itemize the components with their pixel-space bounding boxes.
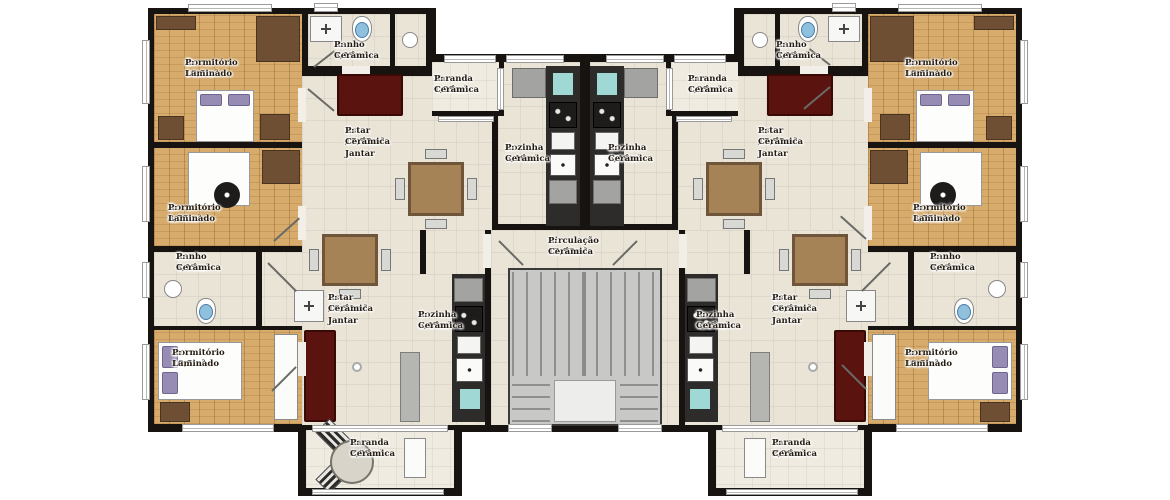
window (1020, 40, 1028, 104)
chair (693, 178, 703, 200)
balcony-bench (744, 438, 766, 478)
pillow (920, 94, 942, 106)
top-center-notch (436, 0, 734, 54)
wardrobe (262, 150, 300, 184)
chair (765, 178, 775, 200)
stair-landing (554, 380, 616, 422)
oven (687, 358, 714, 382)
chair (467, 178, 477, 200)
wardrobe (156, 16, 196, 30)
stair-treads (620, 380, 658, 422)
window (508, 424, 552, 432)
wall-stub (390, 14, 395, 66)
nightstand (260, 114, 290, 140)
wardrobe (870, 16, 914, 62)
nightstand (158, 116, 184, 140)
balcony-railing (674, 55, 726, 63)
light-fixture (808, 362, 818, 372)
dining-table (408, 162, 464, 216)
kitchen-sink (550, 70, 576, 98)
stair-stringer (583, 272, 586, 376)
stair-treads (512, 380, 550, 422)
window (1020, 344, 1028, 400)
wardrobe (974, 16, 1014, 30)
wall-stub (744, 230, 750, 274)
wall-stub (420, 230, 426, 274)
dining-table (706, 162, 762, 216)
dresser (160, 402, 190, 422)
counter-sink (689, 336, 713, 354)
nightstand (986, 116, 1012, 140)
wall-stub (908, 252, 914, 326)
window (606, 55, 664, 63)
pillow (992, 346, 1008, 368)
pillow (992, 372, 1008, 394)
shower-tray (294, 290, 324, 322)
window (898, 4, 982, 12)
door-opening (483, 234, 491, 268)
window (142, 40, 150, 104)
chair (395, 178, 405, 200)
kitchen-sink (594, 70, 620, 98)
toilet-seat (957, 304, 971, 320)
toilet-seat (801, 22, 815, 38)
door-opening (298, 342, 306, 376)
window (188, 4, 272, 12)
balcony-railing (666, 68, 673, 110)
sofa (337, 74, 403, 116)
toilet-seat (355, 22, 369, 38)
fridge (454, 278, 483, 302)
oven (456, 358, 483, 382)
window (832, 3, 856, 12)
sofa (834, 330, 866, 422)
sofa (767, 74, 833, 116)
stove (549, 102, 577, 128)
pillow (162, 372, 178, 394)
window (142, 166, 150, 222)
window (1020, 262, 1028, 298)
light-fixture (352, 362, 362, 372)
dining-table (322, 234, 378, 286)
stove (593, 102, 621, 128)
window (142, 344, 150, 400)
cabinet (549, 180, 577, 204)
chair (381, 249, 391, 271)
door-opening (864, 342, 872, 376)
fridge (687, 278, 716, 302)
door-opening (298, 206, 306, 240)
pillow (200, 94, 222, 106)
shower-tray (846, 290, 876, 322)
kitchen-sink (687, 386, 713, 412)
closet (872, 334, 896, 420)
balcony-bench (404, 438, 426, 478)
counter-sink (457, 336, 481, 354)
chair (851, 249, 861, 271)
chair (309, 249, 319, 271)
chair (425, 149, 447, 159)
dining-table (792, 234, 848, 286)
tv-rack (400, 352, 420, 422)
window (314, 3, 338, 12)
chair (723, 219, 745, 229)
door-opening (864, 206, 872, 240)
balcony-door-opening (438, 116, 494, 122)
cabinet (593, 180, 621, 204)
door-opening (342, 66, 370, 74)
sofa (304, 330, 336, 422)
counter-sink (551, 132, 575, 150)
shower-tray (828, 16, 860, 42)
pillow (948, 94, 970, 106)
shower-tray (310, 16, 342, 42)
fridge (624, 68, 658, 98)
balcony-railing (497, 68, 504, 110)
washbasin (164, 280, 182, 298)
door-opening (298, 88, 306, 122)
window (142, 262, 150, 298)
chair (779, 249, 789, 271)
balcony-door-opening (722, 425, 858, 432)
fridge (512, 68, 546, 98)
toilet-seat (199, 304, 213, 320)
chair (723, 149, 745, 159)
door-opening (800, 66, 828, 74)
door-opening (864, 88, 872, 122)
wardrobe (256, 16, 300, 62)
window (896, 424, 988, 432)
window (1020, 166, 1028, 222)
tv-rack (750, 352, 770, 422)
balcony-railing (312, 489, 444, 495)
door-opening (679, 234, 687, 268)
washbasin (402, 32, 418, 48)
balcony-railing (726, 489, 858, 495)
wardrobe (870, 150, 908, 184)
window (618, 424, 662, 432)
dresser (980, 402, 1010, 422)
washbasin (988, 280, 1006, 298)
pillow (228, 94, 250, 106)
window (182, 424, 274, 432)
washbasin (752, 32, 768, 48)
wall-stub (256, 252, 262, 326)
chair (425, 219, 447, 229)
nightstand (880, 114, 910, 140)
balcony-railing (444, 55, 496, 63)
kitchen-sink (457, 386, 483, 412)
balcony-door-opening (312, 425, 448, 432)
oven (550, 154, 576, 176)
balcony-door-opening (676, 116, 732, 122)
window (506, 55, 564, 63)
floor-plan: Dormitório A: 10,5m² P: Laminado Banho A… (0, 0, 1170, 500)
